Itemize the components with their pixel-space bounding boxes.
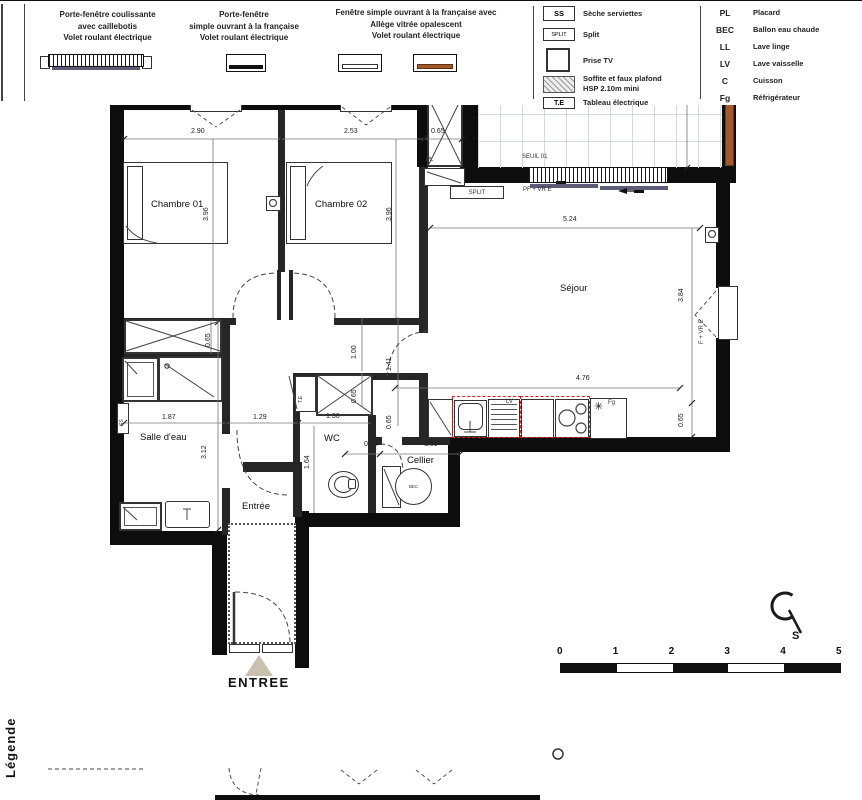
split-tag: SPLIT (450, 186, 504, 199)
washbasin (165, 501, 210, 528)
tv-socket-living (705, 227, 719, 243)
wall-entry-left (212, 531, 227, 655)
partition-hall-stub-h (243, 462, 300, 472)
dimension-label: 1.41 (386, 357, 393, 371)
dimension-label: 1.87 (162, 414, 176, 421)
legend-abbr-pl: PL (705, 8, 745, 18)
wall-bath-bottom (110, 531, 226, 545)
scale-tick-label: 0 (557, 647, 563, 657)
partition-bedrooms (278, 110, 285, 272)
legend-ss-box: SS (543, 6, 575, 21)
wall-left (110, 95, 124, 545)
window-living-right (718, 286, 738, 340)
legend-window-brown-symbol (413, 54, 457, 72)
partition-cellar-top-b (402, 437, 450, 445)
room-label: WC (324, 434, 340, 444)
dimension-label: 3.12 (201, 445, 208, 459)
scale-tick-label: 3 (724, 647, 730, 657)
legend-abbr-fg-label: Réfrigérateur (753, 93, 800, 102)
room-label: Cellier (407, 456, 434, 466)
dimension-label: 1.64 (304, 455, 311, 469)
legend-soffit-label2: HSP 2.10m mini (583, 84, 639, 93)
closet-pl-top (427, 97, 463, 167)
scale-tick-label: 5 (836, 647, 842, 657)
kitchen-cabinet (428, 399, 453, 438)
fridge-snowflake-icon: ✳ (594, 402, 603, 413)
sliding-door-grating (528, 167, 668, 183)
scale-bar (560, 663, 841, 673)
legend-te-box: T.E (543, 97, 575, 109)
legend-divider-0 (24, 4, 25, 101)
dimension-label: 4.76 (576, 375, 590, 382)
legend-abbr-bec-label: Ballon eau chaude (753, 25, 819, 34)
legend-abbr-fg: Fg (705, 93, 745, 103)
legend-tv-box (546, 48, 570, 72)
dimension-label: 0.65 (386, 415, 393, 429)
legend-ss-label: Sèche serviettes (583, 9, 642, 18)
tv-socket-bedrooms (266, 196, 281, 211)
legend-abbr-c: C (705, 76, 745, 86)
wall-living-bottom (448, 437, 730, 452)
scale-tick-label: 4 (780, 647, 786, 657)
wall-wc-bottom (295, 513, 460, 527)
legend-abbr-lv-label: Lave vaisselle (753, 59, 803, 68)
dimension-label: 1.00 (351, 345, 358, 359)
compass-south-label: S (792, 631, 799, 642)
dimension-label: 0.65 (678, 413, 685, 427)
water-heater: BEC (395, 468, 432, 505)
legend-divider-2 (700, 6, 701, 99)
partition-bath-right-a (222, 318, 230, 434)
dimension-label: 3.84 (678, 288, 685, 302)
door-leaf-bedroom1 (277, 270, 281, 320)
room-label: Entrée (242, 502, 270, 512)
room-label: Séjour (560, 284, 587, 294)
legend-border-left (1, 4, 3, 101)
partition-bedrooms-bottom-b (334, 318, 426, 325)
water-heater-label: BEC (409, 484, 418, 489)
legend-col2-text: Porte-fenêtre simple ouvrant à la frança… (178, 9, 310, 44)
legend-abbr-ll-label: Lave linge (753, 42, 790, 51)
legend-divider-1 (533, 6, 534, 99)
entry-soffit-area (228, 523, 296, 644)
dimension-label: 2.90 (191, 128, 205, 135)
legend-french-door-symbol (226, 54, 266, 72)
entry-door-sill-2 (262, 644, 293, 653)
sliding-door-handle-2 (634, 190, 644, 193)
scale-tick-label: 1 (613, 647, 619, 657)
legend-col3-text: Fenêtre simple ouvrant à la française av… (305, 7, 527, 42)
closet-wc (316, 374, 373, 416)
dimension-label: 5.24 (563, 216, 577, 223)
legend-col1-text: Porte-fenêtre coulissante avec caillebot… (30, 9, 185, 44)
legend-sliding-door-symbol (40, 54, 152, 76)
entry-main-label: ENTREE (228, 676, 290, 689)
washing-machine (122, 357, 159, 402)
entry-door-sill-1 (229, 644, 260, 653)
dimension-label: 2.53 (344, 128, 358, 135)
legend-te-label: Tableau électrique (583, 98, 648, 107)
legend-abbr-c-label: Cuisson (753, 76, 783, 85)
partition-hall-stub-v (293, 462, 302, 517)
pillow-bedroom1 (127, 166, 143, 240)
split-tag-label: SPLIT (469, 190, 486, 196)
legend-soffit-label: Soffite et faux plafond (583, 74, 662, 83)
partition-living-left-b (419, 376, 428, 440)
partition-wc-right (368, 415, 376, 513)
legend-title: Légende (3, 701, 23, 795)
shower (158, 356, 223, 402)
pillow-bedroom2 (290, 166, 306, 240)
legend-abbr-ll: LL (705, 42, 745, 52)
legend-tv-label: Prise TV (583, 56, 613, 65)
legend-abbr-pl-label: Placard (753, 8, 780, 17)
kitchen-highlight-2 (520, 396, 590, 438)
wall-entry-right (295, 511, 309, 668)
partition-cellar-top-a (376, 437, 382, 445)
legend-abbr-lv: LV (705, 59, 745, 69)
floor-plan: SPLIT BEC ✳ ENTREE S (0, 0, 862, 800)
legend-panel: Légende Porte-fenêtre coulissante avec c… (0, 0, 862, 105)
wall-slider-flank-left (460, 167, 528, 183)
electrical-panel-box (295, 376, 316, 412)
entry-arrow-triangle (245, 655, 273, 676)
towel-dryer-tag (117, 403, 129, 434)
legend-split-label: Split (583, 30, 599, 39)
legend-window-white-symbol (338, 54, 382, 72)
toilet-flush (348, 479, 356, 489)
door-leaf-bedroom2 (289, 270, 293, 320)
scale-tick-label: 2 (669, 647, 675, 657)
legend-split-box: SPLIT (543, 28, 575, 41)
split-unit (424, 168, 465, 186)
dryer-machine (119, 502, 162, 531)
legend-abbr-bec: BEC (705, 25, 745, 35)
room-label: Salle d'eau (140, 433, 187, 443)
wall-living-right-lower (716, 338, 730, 452)
partition-living-left-a (419, 167, 428, 333)
legend-soffit-box (543, 76, 575, 93)
dimension-label: 1.29 (253, 414, 267, 421)
closet-bathroom (124, 319, 222, 354)
sliding-door-handle-1 (556, 181, 566, 184)
kitchen-highlight-1 (452, 396, 521, 438)
wall-slider-flank-right (668, 167, 722, 183)
sliding-door-pane-1 (530, 184, 598, 188)
legend-bottom-bar (215, 795, 540, 800)
annotation-label: F + VR E (699, 319, 705, 344)
